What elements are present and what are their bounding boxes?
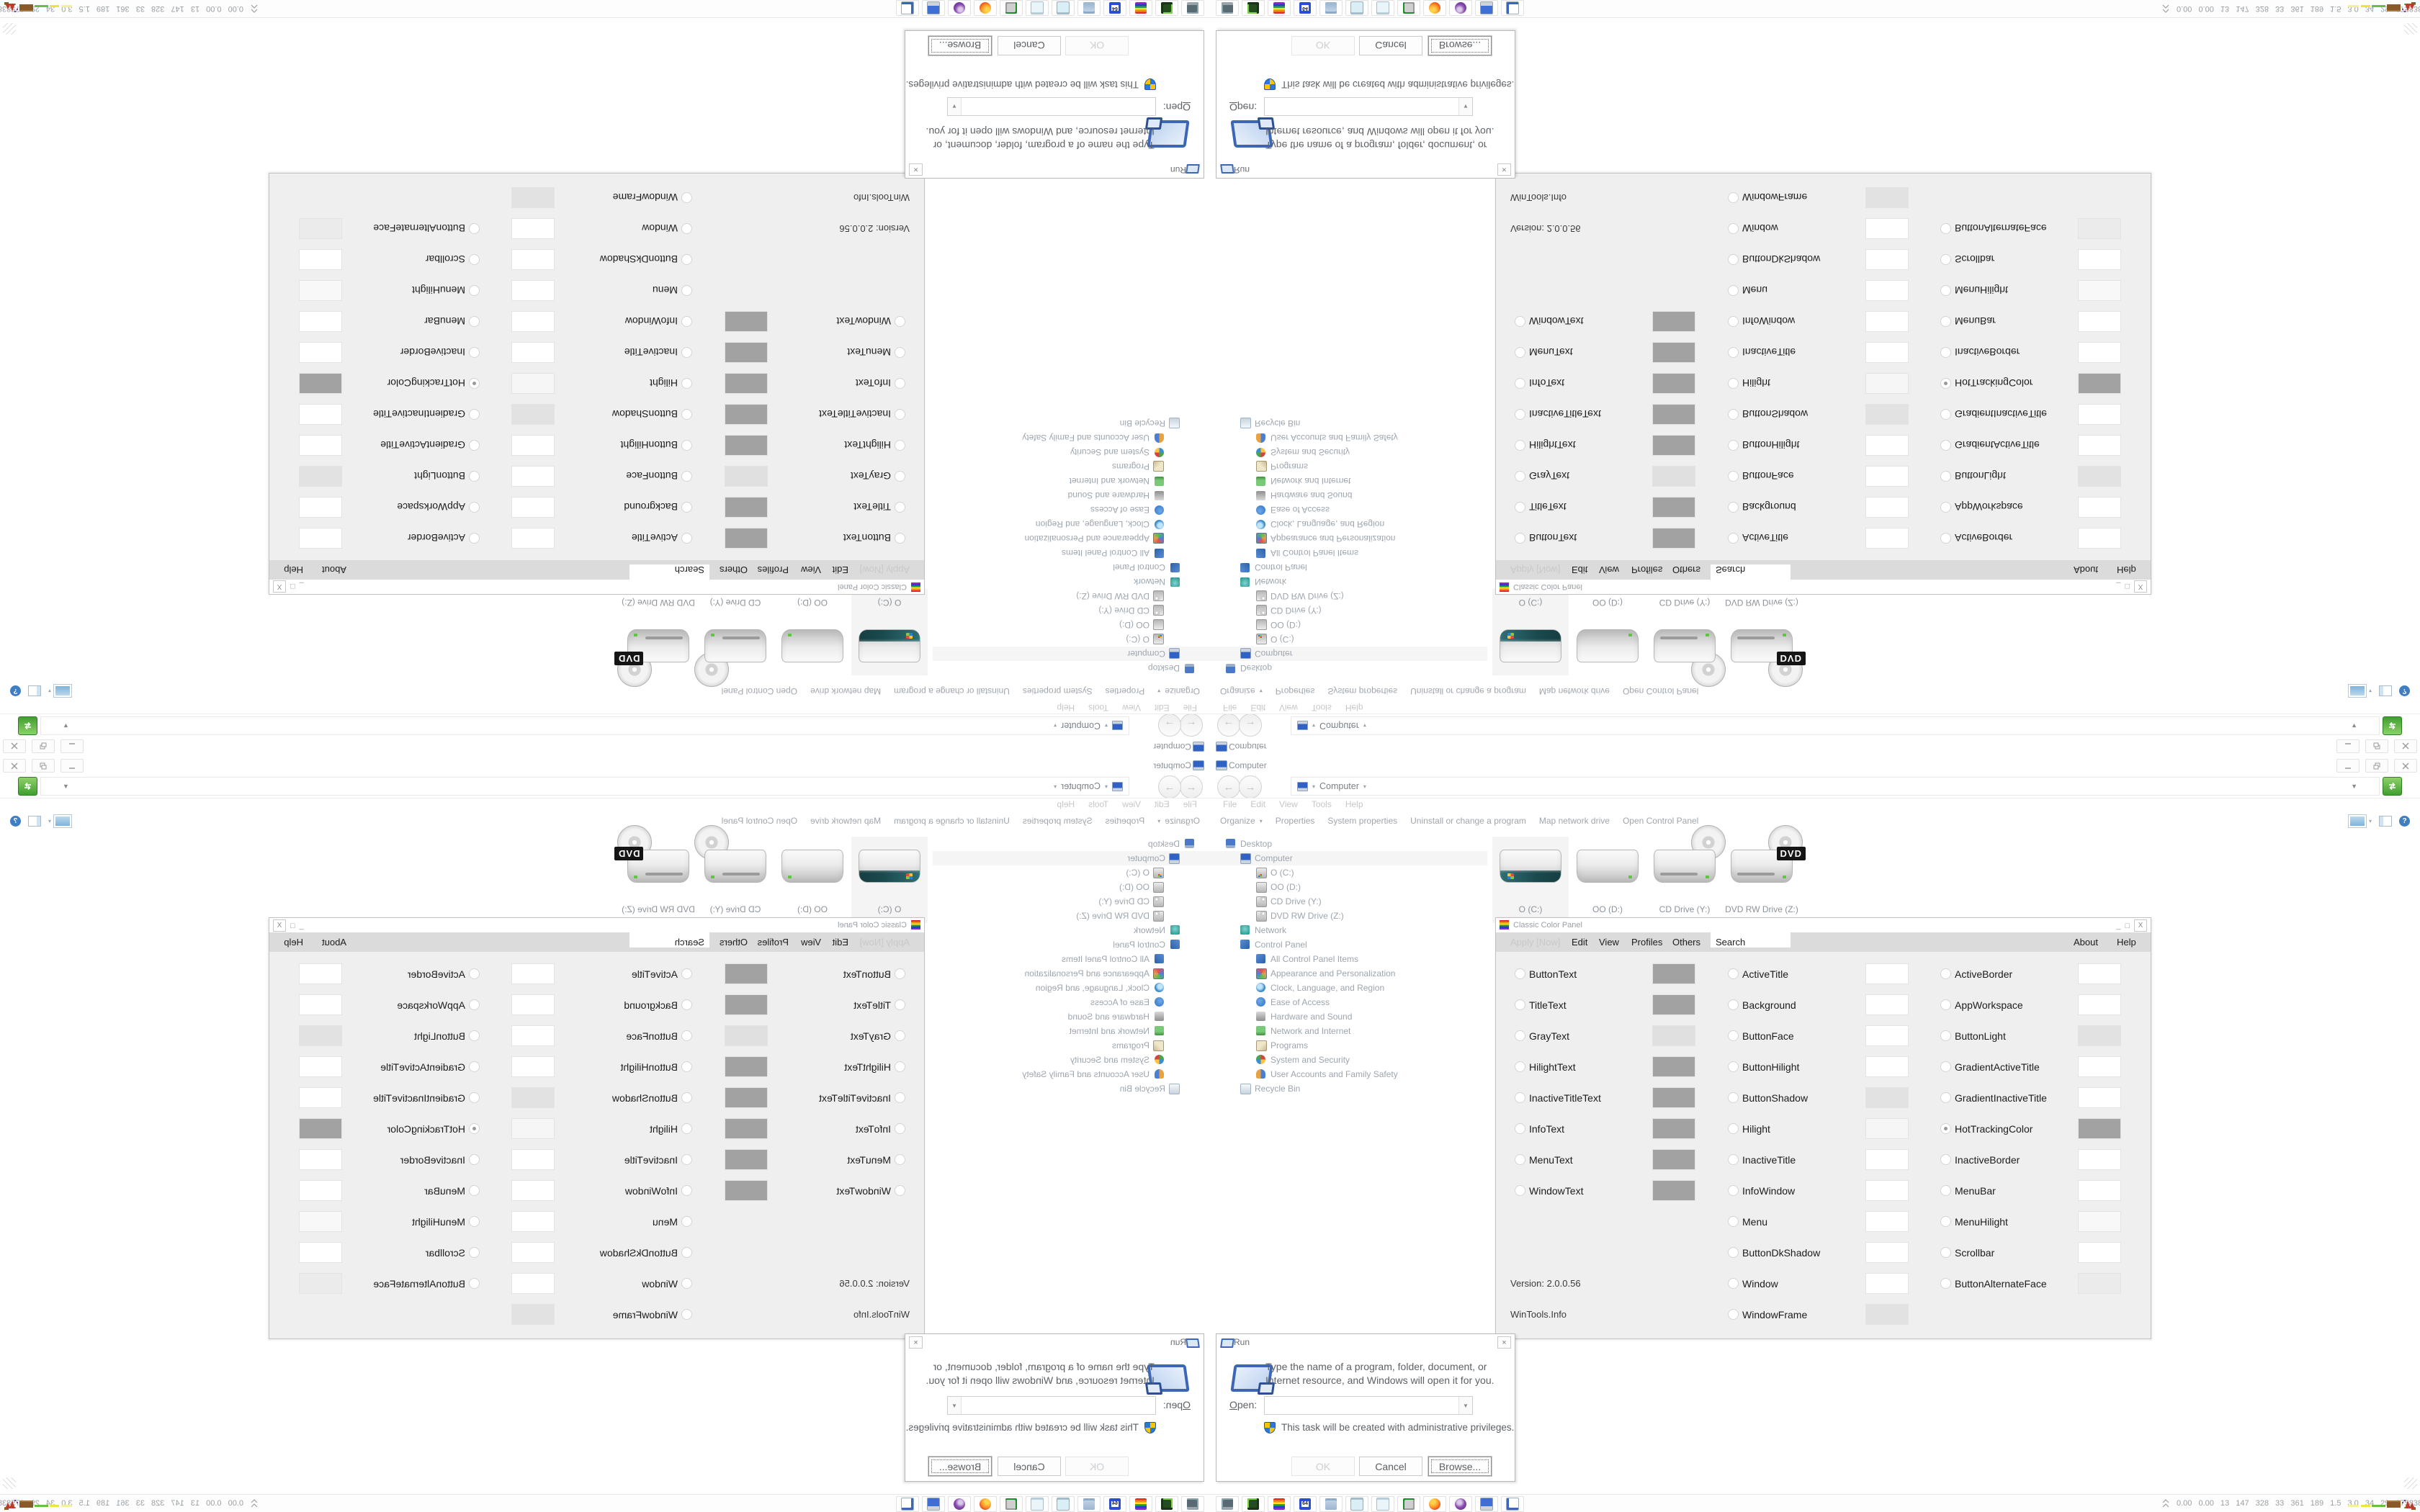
radio-button[interactable] — [681, 378, 692, 389]
minimize-button[interactable]: _ — [300, 582, 304, 591]
radio-button[interactable] — [681, 1247, 692, 1258]
map-network-drive-button[interactable]: Map network drive — [810, 686, 881, 696]
color-swatch[interactable] — [1652, 1149, 1695, 1170]
ok-button[interactable]: OK — [1291, 1457, 1355, 1476]
terminal-icon[interactable] — [1397, 0, 1420, 16]
color-swatch[interactable] — [1652, 466, 1695, 487]
radio-button[interactable] — [469, 254, 480, 265]
radio-button[interactable] — [1728, 285, 1739, 296]
radio-button[interactable] — [1515, 533, 1525, 544]
resize-grip[interactable] — [2404, 1477, 2417, 1489]
radio-button[interactable] — [1515, 1123, 1525, 1134]
chevron-down-icon[interactable]: ▾ — [48, 688, 51, 694]
radio-button[interactable] — [681, 1216, 692, 1227]
run-window-icon[interactable] — [896, 1496, 919, 1512]
tree-item-network-internet[interactable]: Network and Internet — [1210, 474, 1487, 488]
color-swatch[interactable] — [299, 528, 342, 549]
tree-item-desktop[interactable]: Desktop — [933, 661, 1210, 675]
color-swatch[interactable] — [1865, 404, 1909, 425]
radio-button[interactable] — [681, 1278, 692, 1289]
system-properties-button[interactable]: System properties — [1327, 686, 1397, 696]
color-swatch[interactable] — [511, 311, 555, 332]
tree-item-dvd-drive[interactable]: DVD RW Drive (Z:) — [1210, 909, 1487, 923]
tree-item-user-accounts[interactable]: User Accounts and Family Safety — [933, 431, 1210, 445]
edit-menu[interactable]: Edit — [1572, 932, 1587, 952]
radio-button[interactable] — [469, 1216, 480, 1227]
minimize-button[interactable]: _ — [300, 922, 304, 930]
preview-pane-icon[interactable] — [28, 685, 41, 696]
my-computer-icon[interactable] — [922, 1496, 945, 1512]
resize-grip[interactable] — [3, 1477, 16, 1489]
tree-item-appearance[interactable]: Appearance and Personalization — [1210, 966, 1487, 981]
radio-button[interactable] — [1940, 533, 1951, 544]
tree-item-system-security[interactable]: System and Security — [933, 1053, 1210, 1067]
radio-button[interactable] — [1515, 378, 1525, 389]
color-swatch[interactable] — [299, 280, 342, 301]
open-combobox[interactable]: ▼ — [1264, 97, 1473, 116]
open-control-panel-button[interactable]: Open Control Panel — [1623, 686, 1698, 696]
search-input[interactable]: Search — [629, 932, 709, 948]
notepad-icon[interactable] — [1345, 1496, 1368, 1512]
radio-button[interactable] — [1940, 409, 1951, 420]
view-menu[interactable]: View — [801, 560, 821, 580]
tree-item-network[interactable]: Network — [1210, 923, 1487, 937]
color-swatch[interactable] — [2078, 1087, 2121, 1108]
tree-item-cd-drive[interactable]: CD Drive (Y:) — [933, 603, 1210, 618]
radio-button[interactable] — [1728, 409, 1739, 420]
radio-button[interactable] — [1728, 378, 1739, 389]
drive-tile-d[interactable]: OO (D:) — [1569, 837, 1646, 923]
color-swatch[interactable] — [1865, 218, 1909, 239]
drive-tile-cd[interactable]: CD Drive (Y:) — [697, 837, 774, 923]
tray-expand-icon[interactable] — [2162, 0, 2169, 13]
tree-item-appearance[interactable]: Appearance and Personalization — [1210, 531, 1487, 546]
color-swatch[interactable] — [511, 1273, 555, 1294]
menu-view[interactable]: View — [1279, 703, 1298, 713]
restore-button[interactable]: □ — [290, 582, 295, 591]
firefox-icon[interactable] — [1423, 0, 1446, 16]
color-swatch[interactable] — [725, 963, 768, 984]
help-icon[interactable]: ? — [2399, 816, 2410, 827]
radio-button[interactable] — [1728, 999, 1739, 1010]
tree-item-clock-region[interactable]: Clock, Language, and Region — [933, 517, 1210, 531]
radio-button[interactable] — [469, 968, 480, 979]
floppy-64-icon[interactable]: 64 — [1103, 0, 1126, 16]
radio-button[interactable] — [681, 502, 692, 513]
radio-button[interactable] — [895, 1061, 905, 1072]
properties-button[interactable]: Properties — [1276, 816, 1315, 826]
close-button[interactable]: X — [2134, 919, 2147, 932]
close-button[interactable]: X — [273, 919, 286, 932]
color-swatch[interactable] — [299, 1180, 342, 1201]
tree-item-computer[interactable]: Computer — [933, 647, 1210, 661]
color-swatch[interactable] — [1652, 404, 1695, 425]
forward-button[interactable]: → — [1158, 775, 1181, 798]
menu-view[interactable]: View — [1122, 703, 1141, 713]
chevron-down-icon[interactable]: ▾ — [1157, 688, 1160, 695]
color-swatch[interactable] — [299, 963, 342, 984]
color-swatch[interactable] — [299, 342, 342, 363]
drive-tile-cd[interactable]: CD Drive (Y:) — [1646, 837, 1723, 923]
help-icon[interactable]: ? — [10, 816, 21, 827]
menu-file[interactable]: File — [1183, 703, 1197, 713]
browse-button[interactable]: Browse... — [1428, 36, 1492, 55]
profiles-menu[interactable]: Profiles — [1631, 560, 1662, 580]
organize-button[interactable]: Organize — [1165, 816, 1200, 826]
script-editor-icon[interactable] — [1077, 0, 1101, 16]
tree-item-control-panel[interactable]: Control Panel — [933, 560, 1210, 575]
assistant-icon[interactable] — [948, 0, 971, 16]
classic-color-panel-icon[interactable] — [1129, 1496, 1152, 1512]
menu-view[interactable]: View — [1122, 799, 1141, 809]
back-button[interactable]: ← — [1217, 775, 1240, 798]
color-swatch[interactable] — [2078, 218, 2121, 239]
drive-tile-cd[interactable]: CD Drive (Y:) — [697, 589, 774, 675]
open-control-panel-button[interactable]: Open Control Panel — [1623, 816, 1698, 826]
apply-now-menu[interactable]: Apply [Now] — [1510, 560, 1560, 580]
help-menu[interactable]: Help — [2117, 560, 2136, 580]
radio-button[interactable] — [1940, 1185, 1951, 1196]
tree-item-hardware-sound[interactable]: Hardware and Sound — [933, 488, 1210, 503]
color-swatch[interactable] — [725, 1118, 768, 1139]
edit-menu[interactable]: Edit — [1572, 560, 1587, 580]
chevron-down-icon[interactable]: ▾ — [1157, 818, 1160, 824]
radio-button[interactable] — [1728, 440, 1739, 451]
terminal-icon[interactable] — [1000, 1496, 1023, 1512]
radio-button[interactable] — [1728, 1278, 1739, 1289]
color-swatch[interactable] — [511, 435, 555, 456]
color-swatch[interactable] — [1865, 187, 1909, 208]
close-button[interactable] — [2394, 759, 2417, 773]
radio-button[interactable] — [1940, 968, 1951, 979]
color-swatch[interactable] — [725, 528, 768, 549]
radio-button[interactable] — [895, 999, 905, 1010]
change-view-icon[interactable] — [54, 685, 71, 697]
radio-button[interactable] — [895, 1185, 905, 1196]
color-swatch[interactable] — [1865, 1118, 1909, 1139]
tree-item-user-accounts[interactable]: User Accounts and Family Safety — [933, 1067, 1210, 1081]
tree-item-control-panel[interactable]: Control Panel — [933, 937, 1210, 952]
uninstall-button[interactable]: Uninstall or change a program — [1410, 686, 1526, 696]
color-swatch[interactable] — [511, 1180, 555, 1201]
tree-item-recycle-bin[interactable]: Recycle Bin — [1210, 416, 1487, 431]
properties-button[interactable]: Properties — [1106, 816, 1145, 826]
radio-button[interactable] — [1728, 1216, 1739, 1227]
system-graph[interactable] — [2348, 2, 2416, 15]
color-swatch[interactable] — [1652, 497, 1695, 518]
tree-item-ease-of-access[interactable]: Ease of Access — [933, 995, 1210, 1009]
radio-button[interactable] — [1515, 1185, 1525, 1196]
close-icon[interactable]: × — [909, 1336, 923, 1349]
title-bar[interactable]: Classic Color Panel _ □ X — [269, 580, 924, 594]
run-window-icon[interactable] — [1501, 1496, 1524, 1512]
tree-item-network[interactable]: Network — [933, 575, 1210, 589]
color-swatch[interactable] — [725, 373, 768, 394]
color-swatch[interactable] — [511, 342, 555, 363]
my-computer-icon[interactable] — [1475, 1496, 1498, 1512]
uninstall-button[interactable]: Uninstall or change a program — [1410, 816, 1526, 826]
color-swatch[interactable] — [511, 1087, 555, 1108]
tree-item-network-internet[interactable]: Network and Internet — [933, 474, 1210, 488]
radio-button[interactable] — [1940, 1216, 1951, 1227]
radio-button[interactable] — [1515, 440, 1525, 451]
tree-item-system-security[interactable]: System and Security — [933, 445, 1210, 459]
color-swatch[interactable] — [1865, 342, 1909, 363]
run-window-icon[interactable] — [896, 0, 919, 16]
preview-pane-icon[interactable] — [28, 816, 41, 827]
radio-button[interactable] — [895, 409, 905, 420]
color-swatch[interactable] — [1865, 1304, 1909, 1325]
tree-item-clock-region[interactable]: Clock, Language, and Region — [1210, 981, 1487, 995]
radio-button[interactable] — [1728, 1061, 1739, 1072]
browse-button[interactable]: Browse... — [928, 36, 992, 55]
tree-item-dvd-drive[interactable]: DVD RW Drive (Z:) — [933, 589, 1210, 603]
firefox-icon[interactable] — [974, 1496, 997, 1512]
organize-button[interactable]: Organize — [1165, 686, 1200, 696]
tree-item-desktop[interactable]: Desktop — [1210, 661, 1487, 675]
tree-item-drive-c[interactable]: O (C:) — [1210, 865, 1487, 880]
color-swatch[interactable] — [2078, 404, 2121, 425]
menu-help[interactable]: Help — [1057, 799, 1075, 809]
open-combobox[interactable]: ▼ — [947, 1396, 1156, 1415]
refresh-button[interactable] — [18, 716, 37, 735]
color-swatch[interactable] — [299, 218, 342, 239]
classic-color-panel-icon[interactable] — [1129, 0, 1152, 16]
color-swatch[interactable] — [1652, 435, 1695, 456]
drive-tile-dvd[interactable]: DVD DVD RW Drive (Z:) — [620, 837, 696, 923]
view-menu[interactable]: View — [801, 932, 821, 952]
radio-button[interactable] — [681, 999, 692, 1010]
color-swatch[interactable] — [299, 466, 342, 487]
notepad-alt-icon[interactable] — [1026, 0, 1049, 16]
tree-item-dvd-drive[interactable]: DVD RW Drive (Z:) — [1210, 589, 1487, 603]
color-swatch[interactable] — [511, 218, 555, 239]
radio-button[interactable] — [681, 409, 692, 420]
breadcrumb[interactable]: Computer — [1061, 721, 1101, 731]
drive-tile-c[interactable]: O (C:) — [1492, 837, 1569, 923]
drive-tile-d[interactable]: OO (D:) — [774, 837, 851, 923]
radio-button[interactable] — [469, 1278, 480, 1289]
notepad-icon[interactable] — [1052, 0, 1075, 16]
color-swatch[interactable] — [1865, 280, 1909, 301]
radio-button[interactable] — [469, 440, 480, 451]
radio-button[interactable] — [469, 347, 480, 358]
color-swatch[interactable] — [299, 435, 342, 456]
radio-button[interactable] — [681, 347, 692, 358]
radio-button-selected[interactable] — [469, 1123, 480, 1134]
drive-tile-c[interactable]: O (C:) — [851, 837, 928, 923]
address-bar[interactable]: ▾ Computer ▾ ▼ — [40, 716, 1129, 735]
organize-button[interactable]: Organize — [1220, 686, 1255, 696]
radio-button[interactable] — [1515, 1030, 1525, 1041]
radio-button[interactable] — [469, 502, 480, 513]
my-computer-icon[interactable] — [922, 0, 945, 16]
color-swatch[interactable] — [299, 497, 342, 518]
floppy-64-icon[interactable]: 64 — [1294, 0, 1317, 16]
radio-button[interactable] — [895, 378, 905, 389]
address-dropdown-icon[interactable]: ▼ — [63, 722, 69, 729]
refresh-button[interactable] — [18, 777, 37, 796]
color-swatch[interactable] — [511, 528, 555, 549]
color-swatch[interactable] — [1865, 528, 1909, 549]
color-swatch[interactable] — [511, 1025, 555, 1046]
tree-item-control-panel[interactable]: Control Panel — [1210, 937, 1487, 952]
color-swatch[interactable] — [511, 373, 555, 394]
run-window-icon[interactable] — [1501, 0, 1524, 16]
resize-grip[interactable] — [2404, 23, 2417, 35]
color-swatch[interactable] — [2078, 1118, 2121, 1139]
system-monitor-icon[interactable] — [1181, 0, 1204, 16]
tree-item-network[interactable]: Network — [1210, 575, 1487, 589]
system-monitor-icon[interactable] — [1181, 1496, 1204, 1512]
color-swatch[interactable] — [511, 1211, 555, 1232]
radio-button[interactable] — [681, 192, 692, 203]
color-swatch[interactable] — [299, 1025, 342, 1046]
radio-button[interactable] — [1728, 1030, 1739, 1041]
close-button[interactable] — [3, 759, 26, 773]
color-swatch[interactable] — [725, 404, 768, 425]
color-swatch[interactable] — [725, 1149, 768, 1170]
drive-tile-dvd[interactable]: DVD DVD RW Drive (Z:) — [620, 589, 696, 675]
radio-button[interactable] — [1515, 347, 1525, 358]
radio-button[interactable] — [1940, 223, 1951, 234]
radio-button[interactable] — [1728, 471, 1739, 482]
change-view-icon[interactable] — [54, 815, 71, 827]
color-swatch[interactable] — [725, 497, 768, 518]
restore-button[interactable]: □ — [2125, 582, 2130, 591]
color-swatch[interactable] — [2078, 994, 2121, 1015]
radio-button[interactable] — [1728, 1185, 1739, 1196]
menu-help[interactable]: Help — [1345, 799, 1363, 809]
radio-button[interactable] — [895, 533, 905, 544]
color-swatch[interactable] — [1865, 1273, 1909, 1294]
tree-item-all-cp-items[interactable]: All Control Panel Items — [933, 952, 1210, 966]
open-combobox[interactable]: ▼ — [1264, 1396, 1473, 1415]
tree-item-desktop[interactable]: Desktop — [933, 837, 1210, 851]
radio-button[interactable] — [1728, 1247, 1739, 1258]
menu-tools[interactable]: Tools — [1312, 799, 1332, 809]
drive-tile-cd[interactable]: CD Drive (Y:) — [1646, 589, 1723, 675]
chevron-down-icon[interactable]: ▾ — [1105, 783, 1108, 790]
radio-button[interactable] — [681, 968, 692, 979]
address-bar[interactable]: ▾ Computer ▾ ▼ — [1291, 777, 2380, 796]
floppy-64-icon[interactable]: 64 — [1294, 1496, 1317, 1512]
view-menu[interactable]: View — [1599, 560, 1619, 580]
drive-tile-dvd[interactable]: DVD DVD RW Drive (Z:) — [1724, 837, 1800, 923]
color-swatch[interactable] — [299, 1056, 342, 1077]
forward-button[interactable]: → — [1239, 714, 1262, 737]
radio-button[interactable] — [1515, 409, 1525, 420]
help-menu[interactable]: Help — [2117, 932, 2136, 952]
profiles-menu[interactable]: Profiles — [1631, 932, 1662, 952]
color-swatch[interactable] — [511, 187, 555, 208]
tree-item-control-panel[interactable]: Control Panel — [1210, 560, 1487, 575]
chevron-down-icon[interactable]: ▾ — [2369, 688, 2372, 694]
radio-button[interactable] — [681, 1061, 692, 1072]
tree-item-hardware-sound[interactable]: Hardware and Sound — [1210, 1009, 1487, 1024]
radio-button[interactable] — [681, 471, 692, 482]
tree-item-programs[interactable]: Programs — [933, 1038, 1210, 1053]
floppy-64-icon[interactable]: 64 — [1103, 1496, 1126, 1512]
color-swatch[interactable] — [2078, 528, 2121, 549]
minimize-button[interactable] — [2336, 759, 2359, 773]
tree-item-appearance[interactable]: Appearance and Personalization — [933, 966, 1210, 981]
radio-button[interactable] — [1728, 502, 1739, 513]
color-swatch[interactable] — [2078, 1211, 2121, 1232]
tree-item-programs[interactable]: Programs — [1210, 1038, 1487, 1053]
notepad-alt-icon[interactable] — [1371, 1496, 1394, 1512]
color-swatch[interactable] — [511, 497, 555, 518]
radio-button[interactable] — [1728, 316, 1739, 327]
tree-item-system-security[interactable]: System and Security — [1210, 1053, 1487, 1067]
radio-button[interactable] — [681, 285, 692, 296]
radio-button[interactable] — [681, 1185, 692, 1196]
color-swatch[interactable] — [1865, 963, 1909, 984]
about-menu[interactable]: About — [2074, 560, 2098, 580]
color-swatch[interactable] — [1865, 994, 1909, 1015]
radio-button[interactable] — [1728, 223, 1739, 234]
radio-button[interactable] — [895, 471, 905, 482]
radio-button[interactable] — [1728, 1309, 1739, 1320]
tree-item-network[interactable]: Network — [933, 923, 1210, 937]
disk-manager-icon[interactable] — [1155, 0, 1178, 16]
color-swatch[interactable] — [511, 404, 555, 425]
color-swatch[interactable] — [511, 1242, 555, 1263]
color-swatch[interactable] — [2078, 963, 2121, 984]
chevron-down-icon[interactable]: ▾ — [1363, 783, 1366, 790]
tree-item-computer[interactable]: Computer — [1210, 851, 1487, 865]
radio-button[interactable] — [1728, 192, 1739, 203]
radio-button[interactable] — [681, 1309, 692, 1320]
radio-button[interactable] — [1728, 254, 1739, 265]
address-bar[interactable]: ▾ Computer ▾ ▼ — [1291, 716, 2380, 735]
tree-item-programs[interactable]: Programs — [1210, 459, 1487, 474]
radio-button[interactable] — [1515, 502, 1525, 513]
dropdown-icon[interactable]: ▼ — [1458, 98, 1472, 115]
radio-button[interactable] — [469, 316, 480, 327]
system-graph[interactable] — [4, 2, 72, 15]
radio-button[interactable] — [469, 1247, 480, 1258]
chevron-down-icon[interactable]: ▾ — [1260, 688, 1263, 695]
preview-pane-icon[interactable] — [2379, 816, 2392, 827]
map-network-drive-button[interactable]: Map network drive — [1539, 686, 1610, 696]
color-swatch[interactable] — [1652, 1056, 1695, 1077]
radio-button[interactable] — [1940, 1154, 1951, 1165]
radio-button[interactable] — [469, 1154, 480, 1165]
map-network-drive-button[interactable]: Map network drive — [1539, 816, 1610, 826]
radio-button-selected[interactable] — [1940, 1123, 1951, 1134]
menu-file[interactable]: File — [1223, 799, 1237, 809]
color-swatch[interactable] — [511, 994, 555, 1015]
color-swatch[interactable] — [1865, 466, 1909, 487]
color-swatch[interactable] — [2078, 1149, 2121, 1170]
others-menu[interactable]: Others — [720, 932, 748, 952]
radio-button[interactable] — [1728, 1154, 1739, 1165]
chevron-down-icon[interactable]: ▾ — [1054, 783, 1057, 790]
color-swatch[interactable] — [725, 1056, 768, 1077]
color-swatch[interactable] — [299, 404, 342, 425]
tree-item-network-internet[interactable]: Network and Internet — [933, 1024, 1210, 1038]
tree-item-cd-drive[interactable]: CD Drive (Y:) — [933, 894, 1210, 909]
open-control-panel-button[interactable]: Open Control Panel — [722, 686, 797, 696]
menu-file[interactable]: File — [1183, 799, 1197, 809]
color-swatch[interactable] — [2078, 497, 2121, 518]
radio-button[interactable] — [1940, 1247, 1951, 1258]
tree-item-cd-drive[interactable]: CD Drive (Y:) — [1210, 894, 1487, 909]
color-swatch[interactable] — [1865, 1180, 1909, 1201]
color-swatch[interactable] — [1652, 1180, 1695, 1201]
help-icon[interactable]: ? — [2399, 685, 2410, 696]
